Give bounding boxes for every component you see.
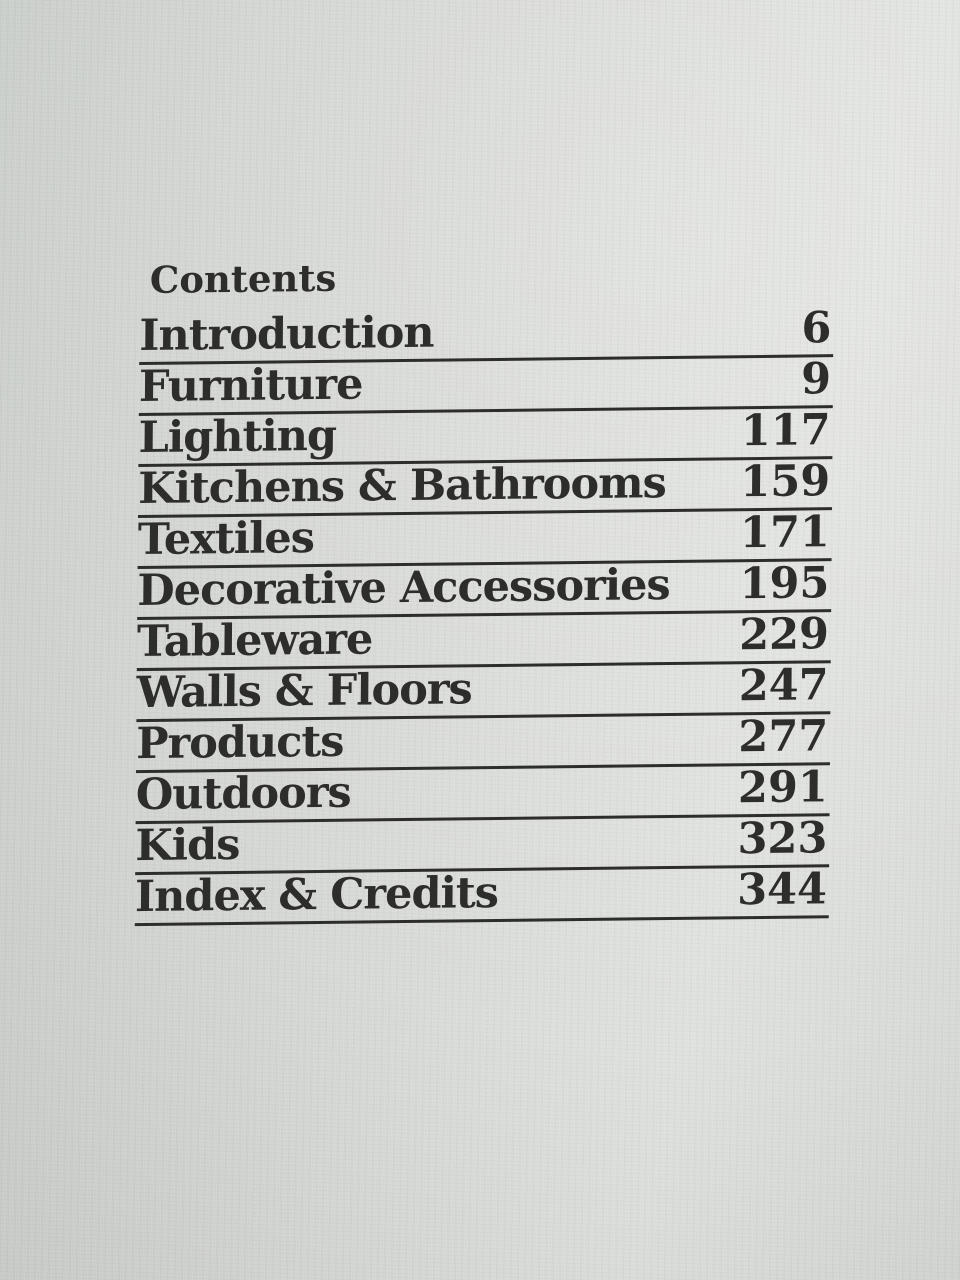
toc-row: Products 277 [136,715,830,773]
toc-row: Introduction 6 [139,307,833,365]
toc-entry-page-number: 6 [781,307,831,351]
toc-entry-label: Outdoors [136,772,351,817]
toc-entry-page-number: 229 [719,613,829,657]
toc-row: Textiles 171 [138,511,832,569]
toc-row: Outdoors 291 [136,766,830,824]
toc-entry-label: Lighting [138,415,336,460]
toc-entry-page-number: 117 [721,409,831,453]
toc-entry-page-number: 323 [717,817,827,861]
toc-entry-page-number: 171 [720,511,830,555]
toc-entry-page-number: 291 [718,766,828,810]
toc-entry-page-number: 195 [719,562,829,606]
toc-entry-label: Kitchens & Bathrooms [138,462,666,511]
toc-entry-label: Textiles [138,517,314,562]
toc-row: Tableware 229 [137,613,831,671]
toc-entry-label: Products [136,721,344,766]
toc-entry-label: Kids [135,824,239,868]
toc-entry-page-number: 277 [718,715,828,759]
toc-entry-page-number: 344 [717,868,827,912]
page-title: Contents [150,254,834,299]
toc-entry-label: Decorative Accessories [137,564,670,613]
toc-row: Furniture 9 [139,358,833,416]
toc-row: Kids 323 [135,817,829,875]
toc-row: Kitchens & Bathrooms 159 [138,460,832,518]
toc-list: Introduction 6 Furniture 9 Lighting 117 … [135,307,834,926]
toc-row: Walls & Floors 247 [136,664,830,722]
toc-entry-label: Introduction [139,312,434,358]
toc-entry-page-number: 247 [719,664,829,708]
toc-entry-page-number: 159 [720,460,830,504]
toc-entry-label: Walls & Floors [136,668,471,715]
book-page-photo: Contents Introduction 6 Furniture 9 Ligh… [0,0,960,1280]
toc-row: Decorative Accessories 195 [137,562,831,620]
toc-entry-label: Tableware [137,618,373,664]
toc-entry-label: Index & Credits [135,872,498,919]
toc-row: Index & Credits 344 [135,868,829,926]
toc-entry-page-number: 9 [781,358,831,402]
toc-row: Lighting 117 [138,409,832,467]
table-of-contents: Contents Introduction 6 Furniture 9 Ligh… [135,254,834,927]
toc-entry-label: Furniture [139,363,363,409]
